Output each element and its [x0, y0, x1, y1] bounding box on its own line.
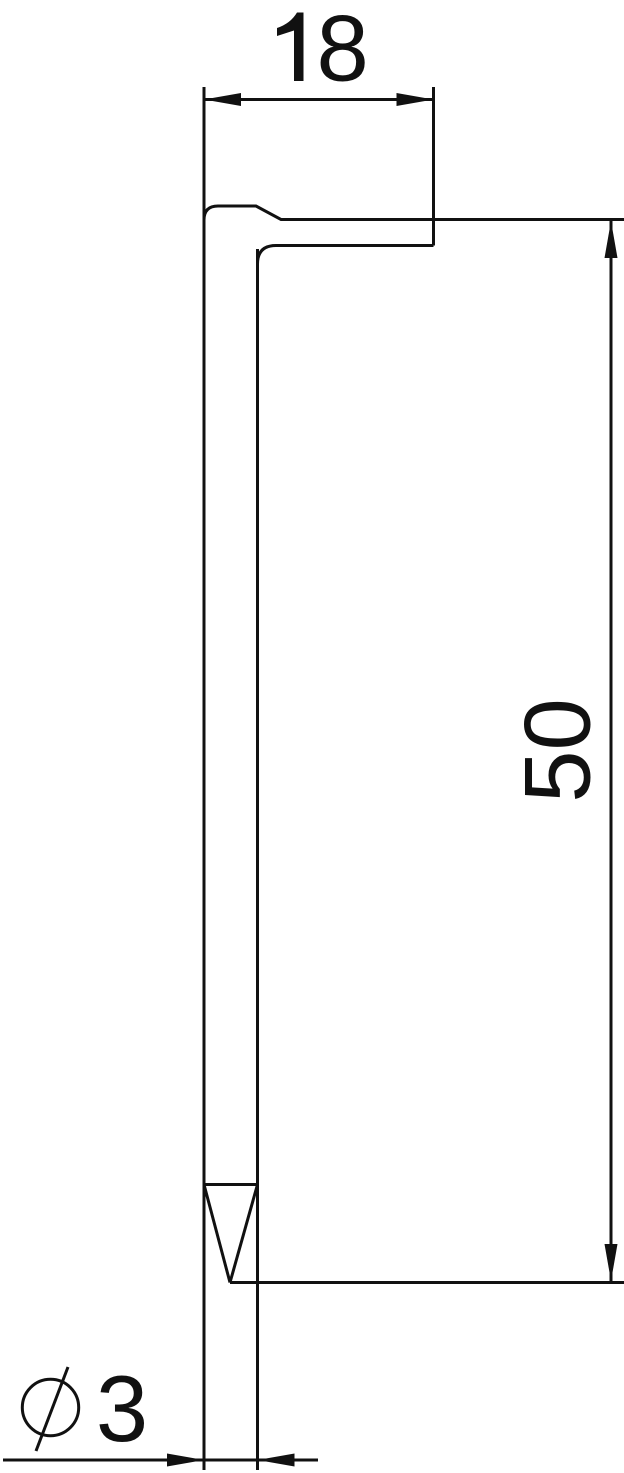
svg-text:8: 8 — [317, 0, 369, 101]
svg-text:3: 3 — [96, 1356, 148, 1461]
svg-text:50: 50 — [505, 698, 610, 803]
